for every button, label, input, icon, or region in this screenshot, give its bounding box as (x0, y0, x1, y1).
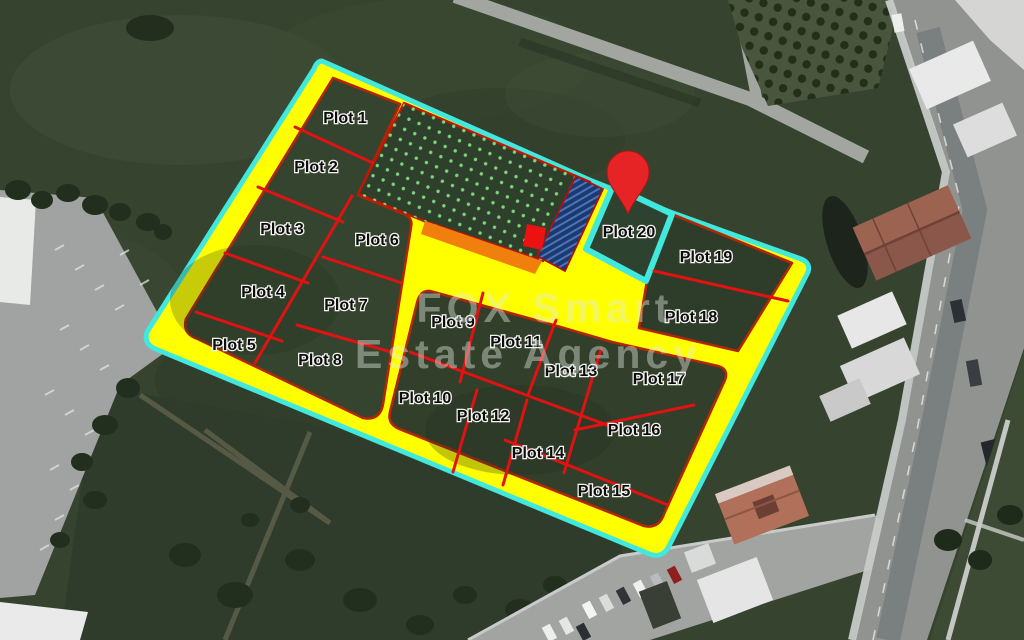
plot-label-8: Plot 8 (298, 352, 342, 369)
plot-label-2: Plot 2 (294, 159, 338, 176)
plot-label-1: Plot 1 (323, 110, 367, 127)
watermark-line2: Estate Agency (355, 331, 701, 377)
plot-label-6: Plot 6 (355, 232, 399, 249)
building-left (0, 197, 36, 305)
red-square-marker (523, 224, 546, 250)
plot-label-15: Plot 15 (578, 483, 631, 500)
plot-label-14: Plot 14 (512, 445, 565, 462)
plot-label-5: Plot 5 (212, 337, 256, 354)
plot-label-20: Plot 20 (603, 224, 656, 241)
plot-label-16: Plot 16 (608, 422, 661, 439)
watermark-line1: FOX Smart (417, 285, 674, 331)
plot-label-7: Plot 7 (324, 297, 368, 314)
plot-label-10: Plot 10 (399, 390, 452, 407)
plot-label-3: Plot 3 (260, 221, 304, 238)
map-canvas: Plot 1Plot 2Plot 3Plot 4Plot 5Plot 6Plot… (0, 0, 1024, 640)
plot-map-image: Plot 1Plot 2Plot 3Plot 4Plot 5Plot 6Plot… (0, 0, 1024, 640)
plot-label-12: Plot 12 (457, 408, 510, 425)
plot-label-4: Plot 4 (241, 284, 285, 301)
plot-label-19: Plot 19 (680, 249, 733, 266)
